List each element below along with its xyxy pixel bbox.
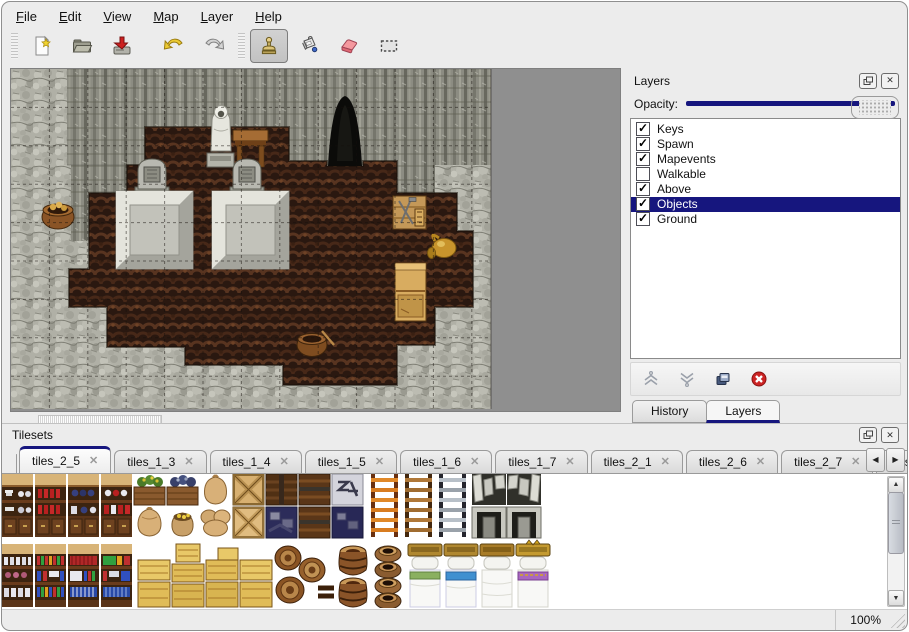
bed-tiles xyxy=(408,540,550,607)
menu-view[interactable]: View xyxy=(103,9,131,24)
close-tab-icon[interactable]: ✕ xyxy=(375,455,384,468)
stone-arch-tiles xyxy=(472,474,541,538)
layer-name: Ground xyxy=(657,212,697,226)
new-file-button[interactable] xyxy=(23,29,61,63)
crate-x-tiles xyxy=(233,474,363,538)
tilesets-header: Tilesets ✕ xyxy=(2,424,907,446)
layer-checkbox[interactable]: ✓ xyxy=(636,212,650,226)
scroll-tabs-right-button[interactable]: ▶ xyxy=(886,448,905,472)
layer-list: ✓ Keys ✓ Spawn ✓ Mapevents Walkable ✓ xyxy=(630,118,901,359)
toolbar-handle[interactable] xyxy=(238,33,245,59)
layer-name: Keys xyxy=(657,122,684,136)
close-tab-icon[interactable]: ✕ xyxy=(565,455,574,468)
layer-checkbox[interactable]: ✓ xyxy=(636,137,650,151)
tileset-vertical-scrollbar[interactable]: ▲ ▼ xyxy=(887,476,905,607)
tileset-tab[interactable]: tiles_1_7 ✕ xyxy=(495,450,587,473)
layer-name: Walkable xyxy=(657,167,706,181)
close-tab-icon[interactable]: ✕ xyxy=(756,455,765,468)
layer-name: Above xyxy=(657,182,691,196)
undo-icon xyxy=(162,34,186,58)
shelf-tiles xyxy=(2,474,132,537)
float-panel-button[interactable] xyxy=(859,73,877,89)
close-panel-button[interactable]: ✕ xyxy=(881,73,899,89)
layers-dock: Layers ✕ Opacity: xyxy=(630,68,901,423)
scroll-tabs-left-button[interactable]: ◀ xyxy=(866,448,885,472)
layer-checkbox[interactable] xyxy=(636,167,650,181)
layer-row-ground[interactable]: ✓ Ground xyxy=(631,212,900,227)
float-icon xyxy=(863,430,874,440)
tilesets-title: Tilesets xyxy=(12,428,53,442)
layer-row-objects[interactable]: ✓ Objects xyxy=(631,197,900,212)
close-tab-icon[interactable]: ✕ xyxy=(661,455,670,468)
layer-row-walkable[interactable]: Walkable xyxy=(631,167,900,182)
map-dock xyxy=(10,68,621,423)
stamp-tool-button[interactable] xyxy=(250,29,288,63)
layer-toolbar xyxy=(630,362,901,396)
layer-checkbox[interactable]: ✓ xyxy=(636,152,650,166)
tileset-tab[interactable]: tiles_2_6 ✕ xyxy=(686,450,778,473)
map-render xyxy=(11,69,493,409)
menu-edit[interactable]: Edit xyxy=(59,9,81,24)
menu-layer[interactable]: Layer xyxy=(201,9,234,24)
tileset-vscroll-thumb[interactable] xyxy=(888,492,904,554)
layer-row-keys[interactable]: ✓ Keys xyxy=(631,122,900,137)
tileset-content[interactable]: ▲ ▼ xyxy=(2,474,907,609)
tileset-tab[interactable]: tiles_2_1 ✕ xyxy=(591,450,683,473)
opacity-row: Opacity: xyxy=(630,92,901,116)
new-file-icon xyxy=(30,34,54,58)
tileset-tab[interactable]: tiles_1_5 ✕ xyxy=(305,450,397,473)
opacity-label: Opacity: xyxy=(634,97,678,111)
tileset-tab-label: tiles_2_5 xyxy=(32,454,80,468)
planter-and-sack-tiles xyxy=(134,475,230,536)
layers-panel-title: Layers xyxy=(634,74,670,88)
duplicate-layer-icon xyxy=(714,370,732,388)
fill-tool-button[interactable] xyxy=(290,29,328,63)
tab-layers[interactable]: Layers xyxy=(706,400,780,423)
washtub-left xyxy=(42,202,74,229)
delete-layer-button[interactable] xyxy=(749,369,769,389)
layer-name: Spawn xyxy=(657,137,694,151)
tileset-tabbar: tiles_2_5 ✕ tiles_1_3 ✕ tiles_1_4 ✕ tile… xyxy=(2,446,907,474)
supply-crate xyxy=(393,196,426,229)
raise-layer-icon xyxy=(642,370,660,388)
barrel-tiles xyxy=(275,546,401,608)
delete-layer-icon xyxy=(750,370,768,388)
close-tab-icon[interactable]: ✕ xyxy=(89,454,98,467)
status-bar: 100% xyxy=(2,609,907,630)
tileset-tab-label: tiles_1_3 xyxy=(127,455,175,469)
layer-row-spawn[interactable]: ✓ Spawn xyxy=(631,137,900,152)
gravestone-right xyxy=(230,159,264,193)
tileset-tiles xyxy=(2,474,562,608)
close-tab-icon[interactable]: ✕ xyxy=(184,455,193,468)
lower-layer-button[interactable] xyxy=(677,369,697,389)
tileset-tab-label: tiles_1_4 xyxy=(223,455,271,469)
layer-checkbox[interactable]: ✓ xyxy=(636,197,650,211)
layer-name: Objects xyxy=(657,197,698,211)
open-file-button[interactable] xyxy=(63,29,101,63)
wooden-cabinet xyxy=(395,263,426,321)
scroll-down-icon[interactable]: ▼ xyxy=(888,590,904,606)
opacity-slider[interactable] xyxy=(686,95,899,112)
eraser-icon xyxy=(337,34,361,58)
gravestone-left xyxy=(135,159,169,193)
menu-map[interactable]: Map xyxy=(153,9,178,24)
float-tilesets-button[interactable] xyxy=(859,427,877,443)
tileset-tab[interactable]: tiles_2_7 ✕ xyxy=(781,450,873,473)
lower-layer-icon xyxy=(678,370,696,388)
tileset-tab-label: tiles_2_7 xyxy=(794,455,842,469)
layer-checkbox[interactable]: ✓ xyxy=(636,182,650,196)
tileset-tab-label: tiles_1_7 xyxy=(508,455,556,469)
redo-icon xyxy=(202,34,226,58)
toolbar-handle[interactable] xyxy=(11,33,18,59)
close-tab-icon[interactable]: ✕ xyxy=(470,455,479,468)
layers-panel-header: Layers ✕ xyxy=(630,70,901,92)
fill-bucket-icon xyxy=(297,34,321,58)
close-tilesets-button[interactable]: ✕ xyxy=(881,427,899,443)
select-tool-button[interactable] xyxy=(370,29,408,63)
tileset-tab-label: tiles_1_5 xyxy=(318,455,366,469)
duplicate-layer-button[interactable] xyxy=(713,369,733,389)
layer-row-mapevents[interactable]: ✓ Mapevents xyxy=(631,152,900,167)
stone-tomb-right xyxy=(212,191,289,269)
menu-file[interactable]: File xyxy=(16,9,37,24)
float-icon xyxy=(863,76,874,86)
map-editor-window: File Edit View Map Layer Help xyxy=(1,1,908,631)
raise-layer-button[interactable] xyxy=(641,369,661,389)
close-tab-icon[interactable]: ✕ xyxy=(851,455,860,468)
tab-history[interactable]: History xyxy=(632,400,707,423)
bottle-shelf-tiles xyxy=(2,544,132,607)
tileset-tab[interactable]: tiles_2_5 ✕ xyxy=(19,446,111,473)
menu-bar: File Edit View Map Layer Help xyxy=(2,2,907,27)
tileset-tab-label: tiles_2_1 xyxy=(604,455,652,469)
map-canvas[interactable] xyxy=(10,68,621,412)
layer-row-above[interactable]: ✓ Above xyxy=(631,182,900,197)
tileset-tab[interactable]: tiles_1_6 ✕ xyxy=(400,450,492,473)
tileset-tab[interactable]: tiles_1_3 ✕ xyxy=(114,450,206,473)
dock-tabs: History Layers xyxy=(630,400,901,423)
select-rect-icon xyxy=(377,34,401,58)
toolbar xyxy=(2,27,907,66)
opacity-slider-handle[interactable] xyxy=(851,96,899,119)
layer-checkbox[interactable]: ✓ xyxy=(636,122,650,136)
tilesets-panel: Tilesets ✕ tiles_2_5 ✕ tiles_1_3 ✕ xyxy=(2,423,907,609)
undo-button[interactable] xyxy=(155,29,193,63)
tileset-tab-label: tiles_1_6 xyxy=(413,455,461,469)
menu-help[interactable]: Help xyxy=(255,9,282,24)
tileset-tab[interactable]: tiles_1_4 ✕ xyxy=(210,450,302,473)
yellow-crate-tiles xyxy=(138,544,272,607)
tileset-tab-label: tiles_2_6 xyxy=(699,455,747,469)
map-hscroll-thumb[interactable] xyxy=(38,415,162,424)
layer-name: Mapevents xyxy=(657,152,716,166)
stone-tomb-left xyxy=(116,191,193,269)
save-icon xyxy=(110,34,134,58)
save-file-button[interactable] xyxy=(103,29,141,63)
tileset-tab-partial-left[interactable] xyxy=(16,454,17,473)
close-tab-icon[interactable]: ✕ xyxy=(280,455,289,468)
stamp-icon xyxy=(257,34,281,58)
map-horizontal-scrollbar[interactable] xyxy=(10,414,621,423)
main-area: Layers ✕ Opacity: xyxy=(2,66,907,423)
ladder-tiles xyxy=(371,474,466,537)
open-folder-icon xyxy=(70,34,94,58)
scroll-up-icon[interactable]: ▲ xyxy=(888,477,904,493)
redo-button[interactable] xyxy=(195,29,233,63)
eraser-tool-button[interactable] xyxy=(330,29,368,63)
